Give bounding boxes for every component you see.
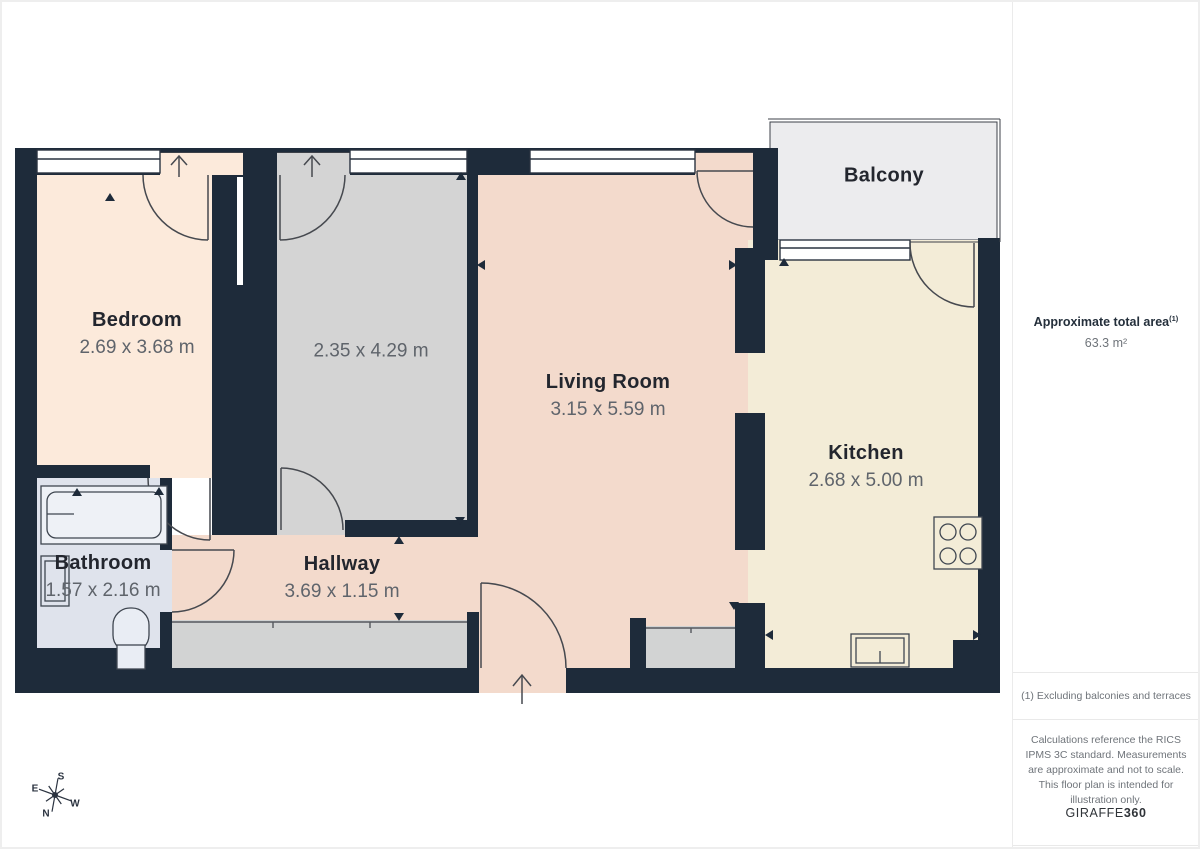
room-name: Bedroom (79, 307, 194, 334)
room-label-kitchen: Kitchen 2.68 x 5.00 m (808, 440, 923, 494)
room-name: Kitchen (808, 440, 923, 467)
divider (1013, 845, 1199, 846)
room-label-gray-room: 2.35 x 4.29 m (313, 338, 428, 365)
window (780, 240, 910, 260)
room-dimensions: 3.69 x 1.15 m (284, 578, 399, 605)
compass-west-label: W (70, 799, 79, 810)
room-label-bedroom: Bedroom 2.69 x 3.68 m (79, 307, 194, 361)
logo-text-bold: 360 (1124, 806, 1147, 820)
room-label-balcony: Balcony (844, 163, 924, 190)
wall-segment (345, 520, 478, 537)
compass-icon (39, 778, 71, 811)
room-name: Balcony (844, 163, 924, 190)
logo-text-regular: GIRAFFE (1065, 806, 1123, 820)
wall-segment (735, 603, 765, 668)
wall-segment (735, 248, 765, 353)
wall-segment (160, 612, 172, 648)
room-dimensions: 2.35 x 4.29 m (313, 338, 428, 365)
window (37, 150, 160, 173)
room-label-hallway: Hallway 3.69 x 1.15 m (284, 551, 399, 605)
total-area-text: Approximate total area (1034, 315, 1169, 329)
window (530, 150, 695, 173)
opening (150, 465, 212, 478)
toilet-icon (113, 608, 149, 669)
wall-segment (15, 648, 172, 693)
floor-plan-page: Bedroom 2.69 x 3.68 m 2.35 x 4.29 m Livi… (0, 0, 1200, 849)
wall-segment (753, 148, 778, 260)
wall-segment (15, 148, 37, 693)
closets (172, 620, 735, 668)
info-sidebar: Approximate total area(1) 63.3 m² (1) Ex… (1012, 2, 1199, 847)
room-label-bathroom: Bathroom 1.57 x 2.16 m (45, 550, 160, 604)
total-area-footnote-marker: (1) (1169, 314, 1178, 323)
footnote: (1) Excluding balconies and terraces (1013, 673, 1199, 719)
wall-segment (467, 172, 478, 537)
window (350, 150, 467, 173)
wall-segment (467, 612, 479, 668)
disclaimer-text: Calculations reference the RICS IPMS 3C … (1025, 733, 1187, 808)
opening (277, 152, 350, 175)
compass-south-label: S (58, 772, 65, 783)
total-area-value: 63.3 m² (1013, 336, 1199, 350)
room-fills (37, 122, 997, 668)
compass-center (53, 793, 58, 798)
wall-segment (630, 618, 646, 668)
stove-icon (934, 517, 982, 569)
room-dimensions: 3.15 x 5.59 m (546, 396, 670, 423)
kitchen-sink-icon (851, 634, 909, 667)
room-label-living-room: Living Room 3.15 x 5.59 m (546, 369, 670, 423)
wall-segment (212, 175, 277, 535)
room-dimensions: 2.68 x 5.00 m (808, 467, 923, 494)
room-name: Hallway (284, 551, 399, 578)
total-area-label: Approximate total area(1) (1013, 314, 1199, 329)
bathtub-icon (41, 486, 167, 544)
wall-segment (735, 413, 765, 550)
closet (172, 620, 467, 668)
compass-east-label: E (32, 784, 39, 795)
divider (1013, 719, 1199, 720)
wall-gap (237, 177, 243, 285)
compass-north-label: N (42, 809, 49, 820)
room-dimensions: 2.69 x 3.68 m (79, 334, 194, 361)
wall-segment (978, 238, 1000, 668)
room-name: Living Room (546, 369, 670, 396)
wall-segment (953, 640, 978, 668)
room-dimensions: 1.57 x 2.16 m (45, 577, 160, 604)
room-name: Bathroom (45, 550, 160, 577)
giraffe360-logo: GIRAFFE360 (1013, 806, 1199, 820)
